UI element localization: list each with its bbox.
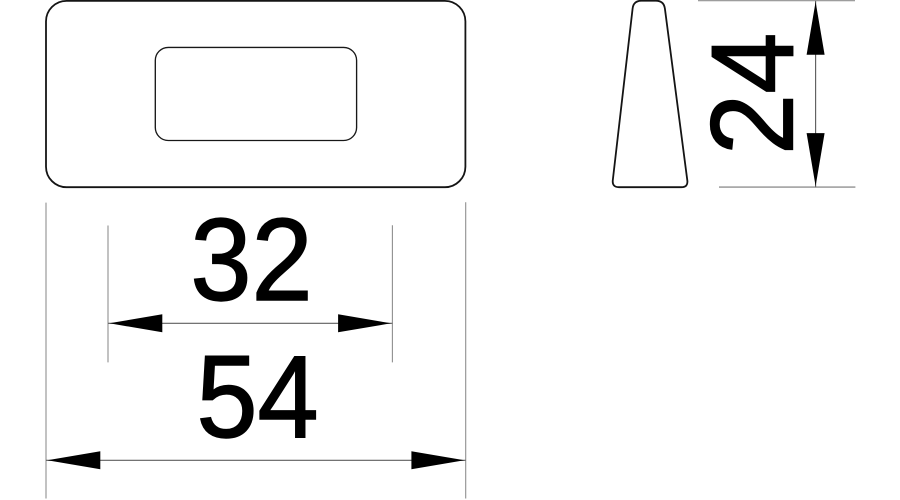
svg-text:32: 32 (190, 195, 312, 326)
svg-text:54: 54 (196, 332, 318, 463)
svg-text:24: 24 (687, 33, 818, 155)
